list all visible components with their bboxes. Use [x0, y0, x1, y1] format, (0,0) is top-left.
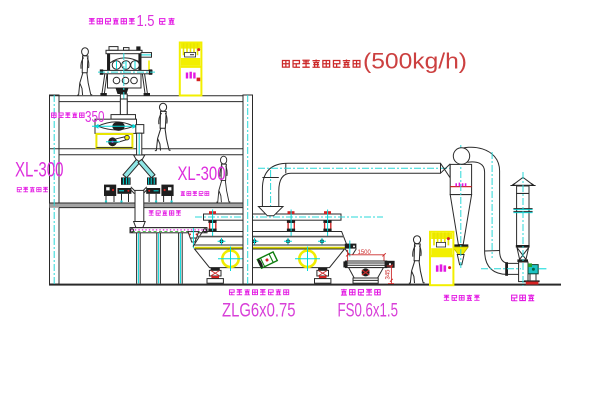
- svg-text:ZLG6x0.75: ZLG6x0.75: [222, 300, 296, 322]
- svg-text:XL-300: XL-300: [15, 158, 64, 181]
- svg-text:1.5: 1.5: [137, 13, 155, 30]
- svg-text:1500: 1500: [358, 250, 372, 256]
- svg-text:(500kg/h): (500kg/h): [363, 49, 467, 74]
- svg-text:350: 350: [85, 109, 105, 126]
- svg-text:XL-300: XL-300: [178, 164, 226, 185]
- svg-text:FS0.6x1.5: FS0.6x1.5: [338, 300, 399, 322]
- svg-text:345: 345: [386, 269, 392, 280]
